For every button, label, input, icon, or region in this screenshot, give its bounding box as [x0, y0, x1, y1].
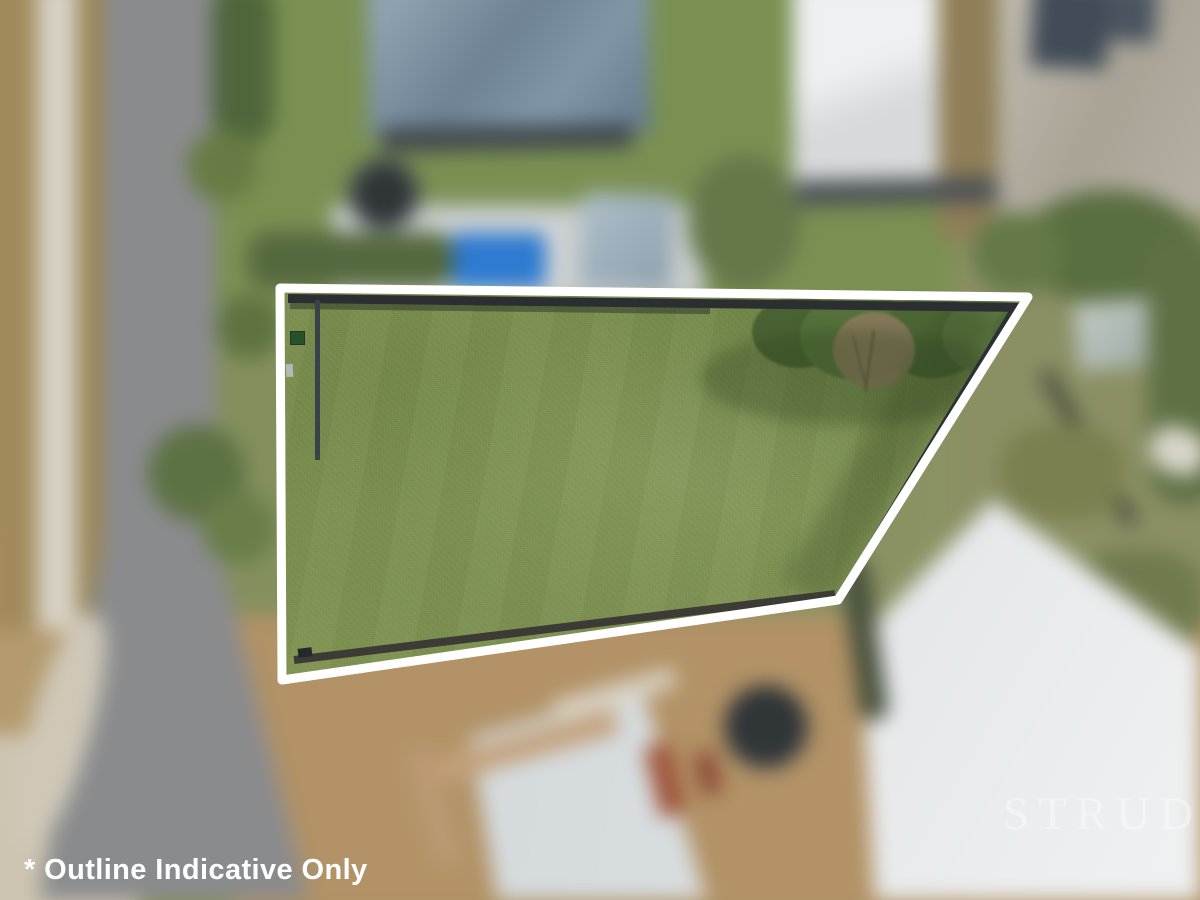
caption-outline-indicative: * Outline Indicative Only [24, 854, 368, 887]
aerial-photo: * Outline Indicative Only STRUD [0, 0, 1200, 900]
agency-watermark: STRUD [1003, 787, 1200, 841]
lot-outline [0, 0, 1200, 900]
